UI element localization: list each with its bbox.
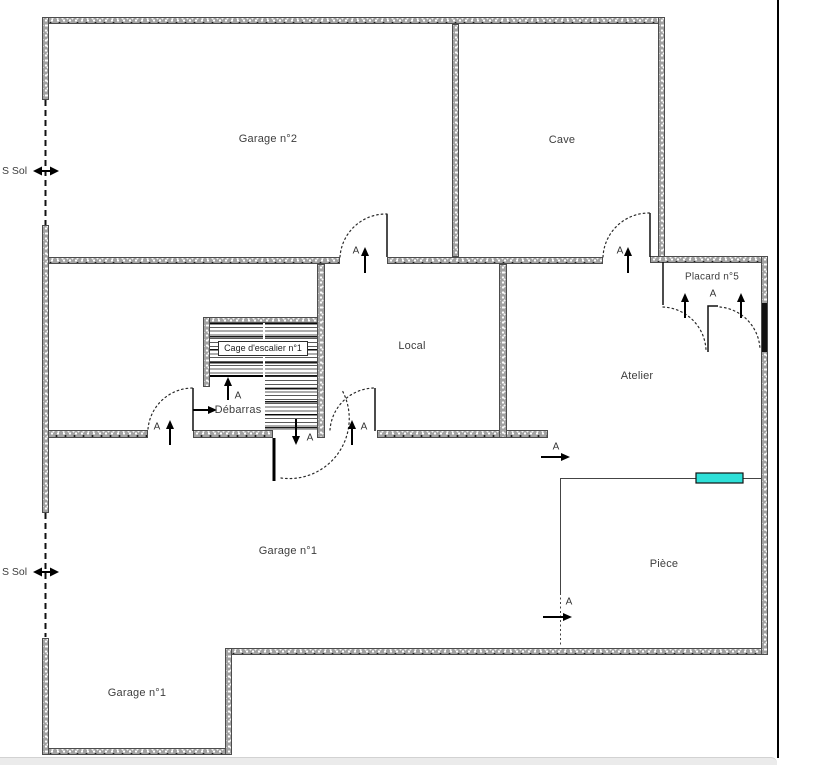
double-arrow-icon-bottom bbox=[33, 568, 59, 577]
wall-bottom-annex bbox=[42, 748, 232, 755]
door-marker-piece: A bbox=[566, 597, 573, 608]
wall-right-outer bbox=[761, 256, 768, 655]
door-marker-debarras-left: A bbox=[154, 422, 161, 433]
arc-local-door bbox=[330, 388, 375, 430]
arc-placard-right-door bbox=[720, 307, 760, 350]
room-label-garage1-annex: Garage n°1 bbox=[108, 687, 166, 699]
door-marker-atelier-passage: A bbox=[553, 442, 560, 453]
horizontal-scrollbar-track[interactable] bbox=[0, 757, 777, 765]
right-arrow-icon-piece-door bbox=[543, 613, 572, 621]
arc-placard-left-door bbox=[663, 307, 706, 350]
up-arrow-icon-placard-right bbox=[737, 293, 745, 318]
wall-low-local bbox=[377, 430, 548, 438]
stairwell-label: Cage d'escalier n°1 bbox=[224, 343, 302, 353]
up-arrow-icon-placard-left bbox=[681, 293, 689, 318]
arc-cave-door bbox=[603, 213, 650, 257]
wall-local-right bbox=[499, 264, 507, 438]
up-arrow-icon-stairs bbox=[224, 377, 232, 400]
stairwell-label-box: Cage d'escalier n°1 bbox=[218, 341, 308, 356]
level-marker-ssol-bottom: S Sol bbox=[2, 566, 27, 578]
door-marker-garage2: A bbox=[353, 246, 360, 257]
room-label-garage2: Garage n°2 bbox=[239, 133, 297, 145]
stair-flight-lower bbox=[265, 323, 317, 430]
right-arrow-icon-debarras bbox=[193, 406, 217, 414]
wall-mid-right bbox=[650, 256, 768, 263]
up-arrow-icon-cave-door bbox=[624, 247, 632, 273]
wall-annex-right bbox=[225, 648, 232, 755]
window-element bbox=[696, 473, 743, 483]
door-leaf-placard bbox=[708, 306, 718, 352]
wall-low-debarras bbox=[193, 430, 273, 438]
room-label-placard5: Placard n°5 bbox=[685, 272, 739, 283]
room-label-local: Local bbox=[398, 340, 425, 352]
door-marker-debarras-upper: A bbox=[235, 391, 242, 402]
wall-left-middle bbox=[42, 225, 49, 513]
room-label-garage1-main: Garage n°1 bbox=[259, 545, 317, 557]
door-marker-cave: A bbox=[617, 246, 624, 257]
room-label-cave: Cave bbox=[549, 134, 575, 146]
double-arrow-icon-top bbox=[33, 167, 59, 176]
arc-garage2-door bbox=[340, 214, 387, 257]
door-marker-placard: A bbox=[710, 289, 717, 300]
wall-stair-right bbox=[317, 264, 325, 438]
wall-cave-right bbox=[658, 17, 665, 257]
level-marker-ssol-top: S Sol bbox=[2, 165, 27, 177]
wall-top bbox=[42, 17, 665, 24]
wall-left-lower bbox=[42, 638, 49, 755]
door-marker-stair: A bbox=[307, 433, 314, 444]
wall-left-upper bbox=[42, 17, 49, 100]
up-arrow-icon-garage2-door bbox=[361, 247, 369, 273]
right-arrow-icon-atelier-passage bbox=[541, 453, 570, 461]
wall-bottom-main bbox=[225, 648, 768, 655]
room-label-atelier: Atelier bbox=[621, 370, 654, 382]
floorplan-canvas[interactable]: Cage d'escalier n°1 bbox=[0, 0, 827, 765]
room-label-debarras: Débarras bbox=[215, 404, 262, 416]
wall-mid-left bbox=[42, 257, 340, 264]
wall-garage2-cave-divider bbox=[452, 24, 459, 257]
door-marker-local: A bbox=[361, 422, 368, 433]
wall-mid-center bbox=[387, 257, 603, 264]
wall-stair-left bbox=[203, 317, 210, 387]
wall-low-left bbox=[48, 430, 148, 438]
up-arrow-icon-debarras-door bbox=[166, 420, 174, 445]
up-arrow-icon-local-door bbox=[348, 420, 356, 445]
room-label-piece: Pièce bbox=[650, 558, 679, 570]
